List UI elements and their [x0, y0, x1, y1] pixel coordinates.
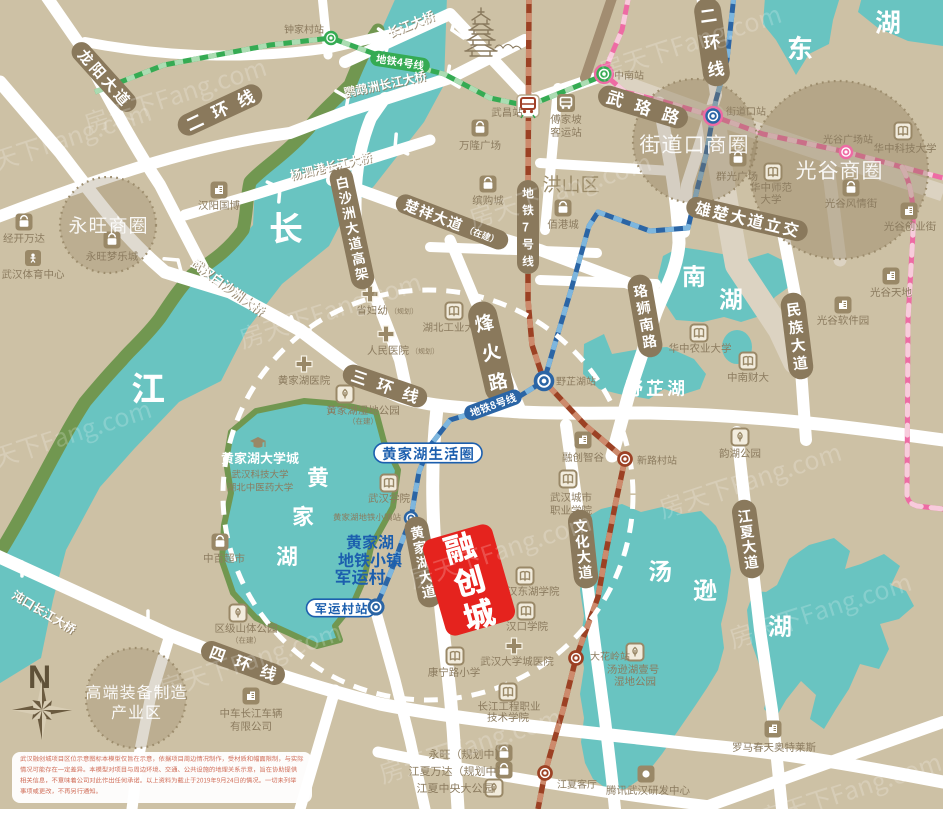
svg-text:N: N [28, 659, 51, 695]
